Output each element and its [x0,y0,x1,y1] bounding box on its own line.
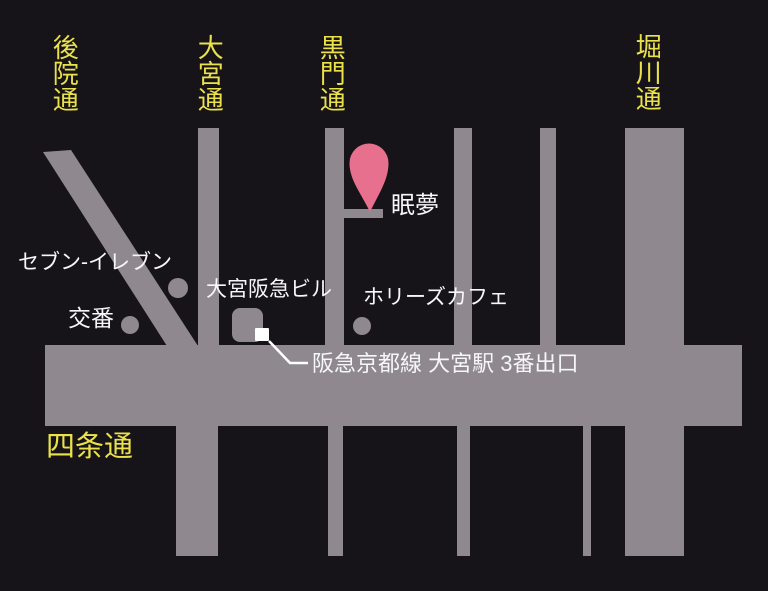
street-label-gooin-dori: 後院通 [50,34,77,112]
road-unnamed-south-1 [457,426,470,556]
road-omiya-dori-north [198,128,219,426]
road-unnamed-north-2 [540,128,556,426]
street-label-horikawa-dori: 堀川通 [633,33,660,111]
station-exit-label: 阪急京都線 大宮駅 3番出口 [312,352,578,375]
street-label-shijo-dori: 四条通 [46,432,133,462]
poi-label-hankyu-building: 大宮阪急ビル [206,279,332,301]
street-label-omiya-dori: 大宮通 [195,34,222,112]
poi-label-koban: 交番 [68,306,114,330]
road-kuromon-dori-south [328,426,343,556]
destination-label: 眠夢 [391,193,439,218]
road-horikawa-dori-south [625,426,684,556]
station-exit-square-icon [255,328,269,341]
seven-eleven-dot-icon [168,278,188,298]
road-omiya-dori-south [176,426,218,556]
road-stub-to-destination [344,209,383,218]
road-unnamed-south-2 [583,426,591,556]
road-kuromon-dori-north [325,128,344,426]
road-horikawa-dori-north [625,128,684,426]
road-gooin-dori-diagonal [43,150,198,346]
destination-pin-icon [350,144,389,213]
poi-label-hollys-cafe: ホリーズカフェ [363,287,509,309]
road-unnamed-north-1 [454,128,472,426]
access-map: 後院通 大宮通 黒門通 堀川通 四条通 眠夢 セブン-イレブン 交番 大宮阪急ビ… [0,0,768,591]
street-label-kuromon-dori: 黒門通 [317,34,344,112]
poi-label-seven-eleven: セブン-イレブン [18,252,172,274]
koban-dot-icon [121,316,139,334]
hollys-cafe-dot-icon [353,317,371,335]
